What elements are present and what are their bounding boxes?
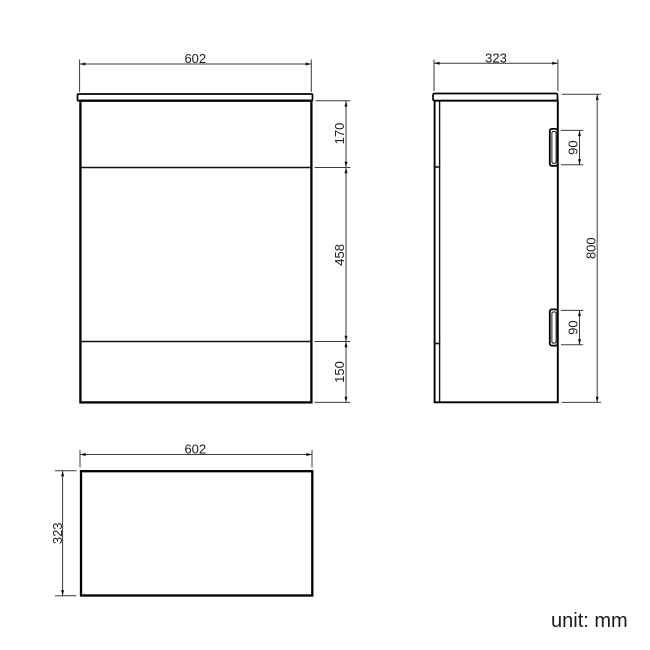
svg-text:800: 800 (584, 237, 599, 259)
svg-text:unit: mm: unit: mm (551, 610, 628, 632)
svg-text:90: 90 (566, 320, 581, 334)
svg-text:90: 90 (566, 140, 581, 154)
svg-text:458: 458 (332, 244, 347, 266)
svg-text:602: 602 (184, 441, 206, 456)
svg-text:323: 323 (50, 522, 65, 544)
svg-text:150: 150 (332, 361, 347, 383)
svg-text:170: 170 (332, 123, 347, 145)
svg-text:602: 602 (184, 51, 206, 66)
svg-text:323: 323 (485, 50, 507, 65)
